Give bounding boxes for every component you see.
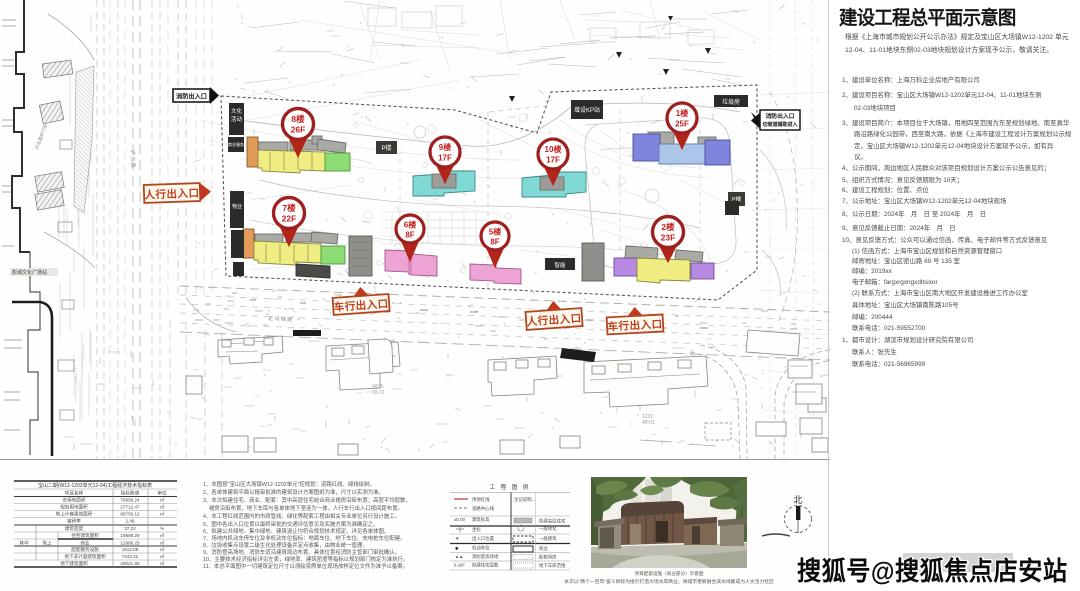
svg-text:配套用房: 配套用房	[539, 554, 557, 561]
svg-text:坐标: 坐标	[472, 526, 481, 533]
svg-text:建筑标高: 建筑标高	[472, 516, 490, 523]
svg-text:消防出入口: 消防出入口	[176, 93, 207, 101]
svg-text:5楼: 5楼	[489, 227, 501, 237]
svg-text:7、场地内机动车停车位及非机动车位指标：地面车位、地下车位、: 7、场地内机动车停车位及非机动车位指标：地面车位、地下车位、充电桩车位配建。	[203, 534, 405, 542]
svg-text:16888.29: 16888.29	[120, 533, 140, 538]
svg-text:1、本图按"宝山区大场镇W12-1202单元"控规划：道路红: 1、本图按"宝山区大场镇W12-1202单元"控规划：道路红线、绿线绘制。	[203, 480, 375, 488]
svg-text:26F: 26F	[291, 125, 306, 135]
svg-text:指标数值: 指标数值	[121, 490, 140, 497]
svg-text:±0.00: ±0.00	[454, 517, 466, 522]
svg-text:8F: 8F	[405, 231, 414, 240]
svg-text:㎡: ㎡	[160, 560, 165, 566]
svg-text:%: %	[160, 526, 164, 531]
svg-text:建筑密度: 建筑密度	[65, 525, 84, 532]
svg-text:其中: 其中	[19, 540, 29, 547]
svg-text:机动车位: 机动车位	[472, 545, 490, 552]
svg-text:商业: 商业	[539, 545, 548, 552]
svg-text:地上计容建筑面积: 地上计容建筑面积	[56, 511, 93, 518]
svg-text:智能: 智能	[554, 261, 566, 269]
svg-text:8、垃圾收集点设置二级生化处理设备并定点收集，由物业统一管理: 8、垃圾收集点设置二级生化处理设备并定点收集，由物业统一管理。	[203, 541, 368, 549]
svg-text:物业: 物业	[232, 203, 242, 210]
svg-text:沪 太 路: 沪 太 路	[129, 150, 137, 168]
svg-text:6、拟建公共绿地、集中绿地、建筑退让均符合规划技术规定，详见: 6、拟建公共绿地、集中绿地、建筑退让均符合规划技术规定，详见各单体图。	[203, 527, 389, 535]
svg-text:消防出入口: 消防出入口	[766, 112, 795, 120]
svg-text:▲▲: ▲▲	[455, 554, 463, 559]
svg-text:2、各单体建筑平面以报审批准的建筑设计方案图纸为准，尺寸以实: 2、各单体建筑平面以报审批准的建筑设计方案图纸为准，尺寸以实测为准。	[203, 488, 384, 496]
svg-text:切坡道辅助进入: 切坡道辅助进入	[762, 121, 797, 128]
svg-text:拟建住宅层数: 拟建住宅层数	[472, 562, 499, 569]
svg-text:一般建筑: 一般建筑	[539, 535, 557, 542]
svg-text:17F: 17F	[546, 156, 560, 165]
svg-text:8F: 8F	[490, 238, 499, 247]
svg-text:9、消防登高场地、消防车道沿建筑周边布置，具体位置经消防主管: 9、消防登高场地、消防车道沿建筑周边布置，具体位置经消防主管部门审批确认。	[203, 548, 400, 556]
svg-text:㎡: ㎡	[160, 497, 165, 503]
svg-text:2.48: 2.48	[126, 519, 135, 524]
svg-text:㎡: ㎡	[160, 540, 165, 546]
svg-text:配套服务设施: 配套服务设施	[71, 546, 99, 553]
svg-text:22F: 22F	[282, 214, 297, 224]
svg-text:1912.08: 1912.08	[122, 547, 139, 552]
svg-text:88756.12: 88756.12	[120, 512, 140, 517]
svg-text:活动: 活动	[231, 115, 243, 123]
svg-text:17F: 17F	[438, 154, 452, 163]
svg-text:1楼: 1楼	[676, 108, 688, 118]
svg-text:78958.24: 78958.24	[120, 498, 140, 503]
svg-text:㎡: ㎡	[160, 546, 165, 552]
svg-text:7442.22: 7442.22	[122, 554, 139, 559]
svg-text:项目配套设施（商业部分）示意图: 项目配套设施（商业部分）示意图	[635, 570, 704, 577]
svg-text:㎡: ㎡	[160, 553, 165, 559]
svg-text:27712.47: 27712.47	[120, 505, 140, 510]
svg-text:注记说明...: 注记说明...	[514, 496, 535, 503]
svg-text:10楼: 10楼	[545, 144, 562, 154]
svg-text:出入口位置: 出入口位置	[472, 535, 495, 542]
svg-text:㎡: ㎡	[160, 504, 165, 510]
svg-text:单位: 单位	[157, 490, 167, 497]
svg-text:6楼: 6楼	[404, 220, 416, 230]
svg-text:住宅建筑面积: 住宅建筑面积	[71, 532, 99, 539]
svg-text:增设KP站: 增设KP站	[574, 106, 600, 114]
svg-text:规划用地面积: 规划用地面积	[60, 504, 88, 511]
svg-text:道路中心线: 道路中心线	[472, 505, 495, 512]
svg-text:文化: 文化	[231, 107, 243, 115]
svg-text:拟建高层住宅: 拟建高层住宅	[539, 518, 566, 525]
svg-text:商业服务: 商业服务	[228, 141, 244, 147]
svg-text:37.22: 37.22	[124, 526, 136, 531]
svg-text:人行出入口: 人行出入口	[144, 187, 199, 202]
svg-text:P楼: P楼	[381, 144, 391, 152]
svg-text:工 程 图 例: 工 程 图 例	[489, 483, 530, 491]
svg-text:11、本总平面图中一切建筑定位尺寸以测绘资质单位现场放样定位: 11、本总平面图中一切建筑定位尺寸以测绘资质单位现场放样定位文件为准予以备案。	[203, 562, 408, 570]
svg-text:38-01: 38-01	[372, 390, 385, 396]
svg-text:走 马 塘 路: 走 马 塘 路	[268, 315, 293, 323]
svg-text:垃圾房: 垃圾房	[722, 98, 740, 106]
svg-text:用地红线: 用地红线	[472, 496, 490, 503]
svg-text:商业: 商业	[80, 540, 90, 547]
svg-text:影城文化广场站: 影城文化广场站	[12, 269, 47, 276]
svg-text:宝山二期(W12-1202单元12-04)工程经济技术指标表: 宝山二期(W12-1202单元12-04)工程经济技术指标表	[38, 482, 152, 489]
svg-text:7楼: 7楼	[282, 203, 296, 213]
svg-text:28021.88: 28021.88	[120, 561, 140, 566]
svg-text:容积率: 容积率	[67, 518, 81, 525]
svg-text:本次以"两个一百年"奋斗目标为指引打造大场水岸商业，将城市更: 本次以"两个一百年"奋斗目标为指引打造大场水岸商业，将城市更新融合滨水绿廊成为人…	[564, 578, 774, 585]
svg-text:3、本次拟建住宅、商业、配套：其中高层住宅结合商业裙房沿街布: 3、本次拟建住宅、商业、配套：其中高层住宅结合商业裙房沿街布置；高层平均层数，	[203, 496, 411, 504]
svg-text:裙房沿街布置，地下车库与各单体地下室连为一体，人行车行出入口: 裙房沿街布置，地下车库与各单体地下室连为一体，人行车行出入口按间距布置。	[209, 504, 403, 512]
svg-text:23F: 23F	[661, 233, 676, 243]
svg-text:一般绿化: 一般绿化	[539, 525, 557, 532]
svg-text:地下非计容建筑面积: 地下非计容建筑面积	[64, 553, 106, 560]
svg-text:5、图中各出入口位置以最终审批的交通评估意见及实施方案为准确: 5、图中各出入口位置以最终审批的交通评估意见及实施方案为准确定之。	[203, 520, 379, 528]
svg-text:8楼: 8楼	[291, 114, 305, 124]
svg-text:◆: ◆	[455, 546, 459, 551]
svg-text:40-01: 40-01	[642, 420, 655, 426]
svg-text:12986.25: 12986.25	[120, 541, 140, 546]
svg-text:地上: 地上	[42, 540, 52, 546]
svg-text:北: 北	[793, 495, 802, 505]
svg-text:地下车库范围: 地下车库范围	[539, 562, 566, 569]
svg-text:㎡: ㎡	[160, 532, 165, 538]
svg-text:㎡: ㎡	[160, 511, 165, 517]
svg-text:2楼: 2楼	[661, 222, 675, 232]
svg-text:25F: 25F	[675, 120, 689, 129]
svg-text:总用地面积: 总用地面积	[63, 497, 86, 504]
svg-text:9楼: 9楼	[439, 142, 451, 152]
svg-text:4、本工程红线范围内的市政管线、绿化等配套工程由相关专业单位: 4、本工程红线范围内的市政管线、绿化等配套工程由相关专业单位另行设计施工。	[203, 512, 400, 520]
svg-text:项目名称: 项目名称	[65, 490, 84, 497]
svg-text:6-16F: 6-16F	[454, 563, 465, 568]
svg-text:10、主要技术经济指标详见左表，绿地率、建筑密度等指标以规划: 10、主要技术经济指标详见左表，绿地率、建筑密度等指标以规划部门核定为准执行。	[203, 555, 408, 563]
svg-text:消防登高场地: 消防登高场地	[472, 553, 499, 560]
svg-text:地下建筑面积: 地下建筑面积	[60, 560, 88, 567]
